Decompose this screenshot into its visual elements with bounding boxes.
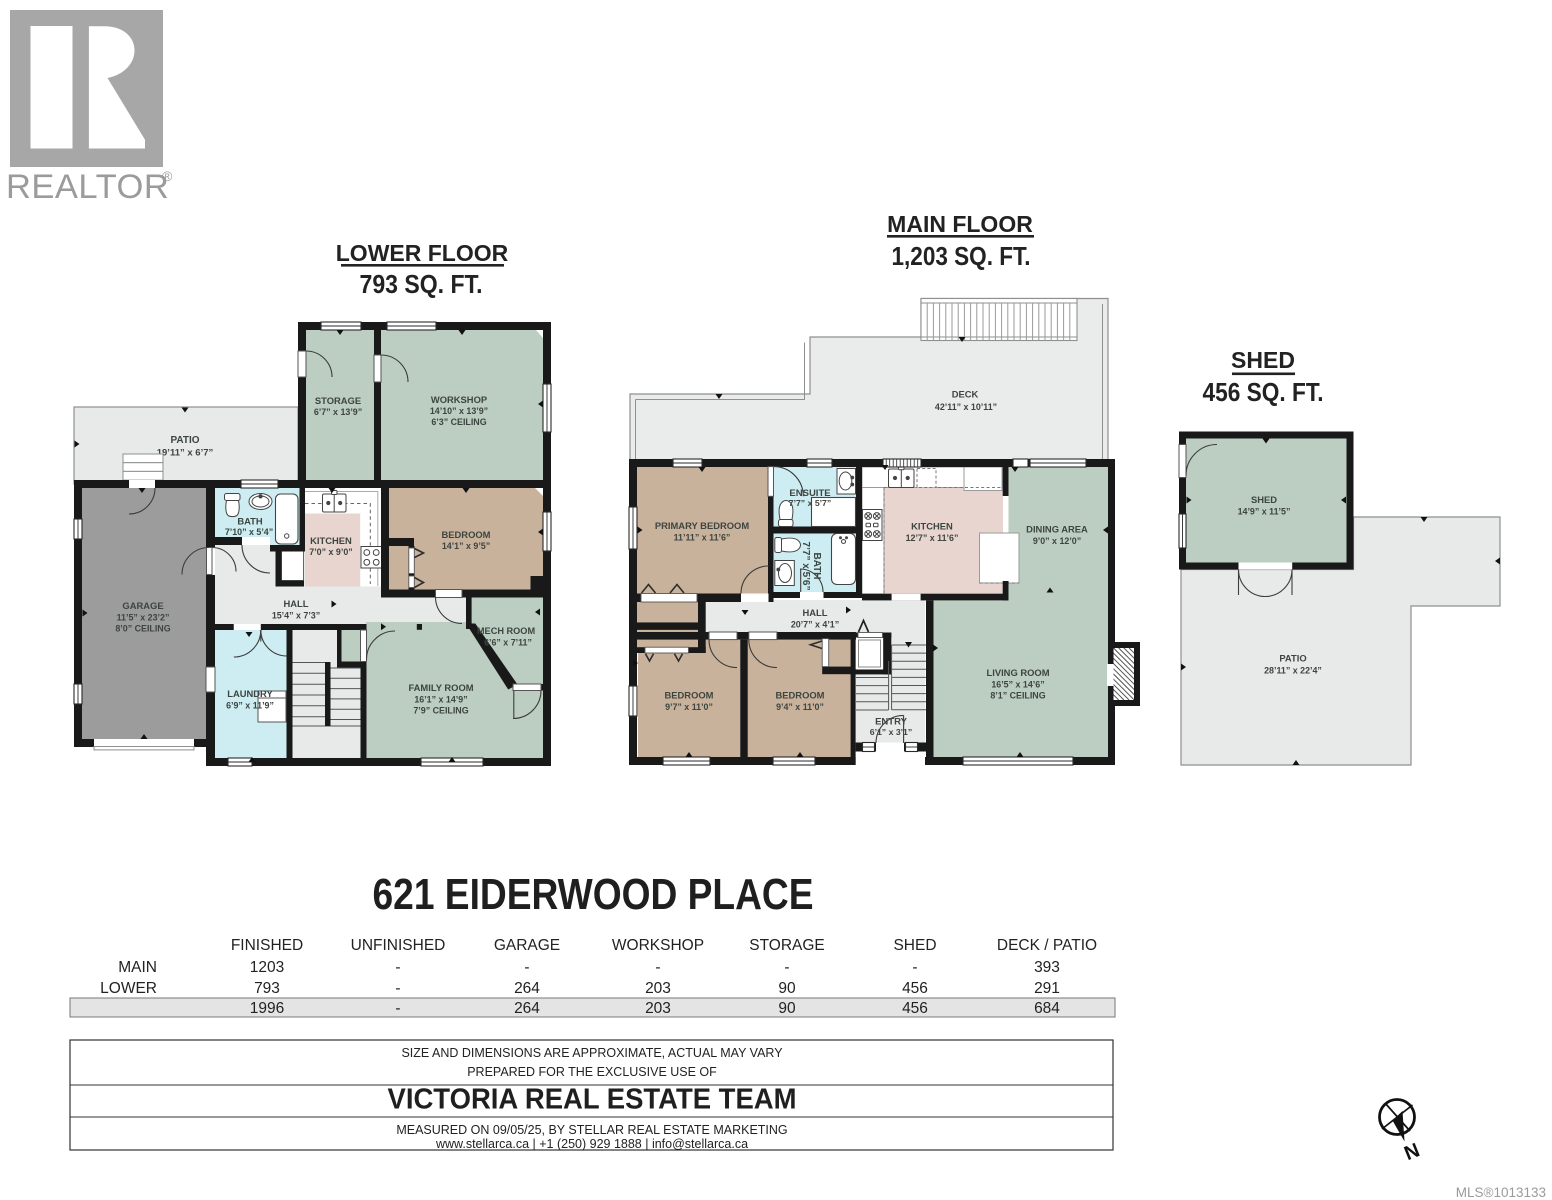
svg-text:6’6” x 7’11”: 6’6” x 7’11”	[484, 638, 532, 648]
svg-text:WORKSHOP: WORKSHOP	[612, 937, 704, 954]
svg-text:VICTORIA REAL ESTATE TEAM: VICTORIA REAL ESTATE TEAM	[388, 1084, 797, 1116]
svg-text:9’0” x 12’0”: 9’0” x 12’0”	[1033, 536, 1081, 546]
svg-text:7’7” x 5’7”: 7’7” x 5’7”	[789, 498, 832, 508]
svg-text:HALL: HALL	[284, 598, 309, 609]
svg-text:14’10” x 13’9”: 14’10” x 13’9”	[430, 406, 488, 416]
svg-text:PREPARED FOR THE EXCLUSIVE USE: PREPARED FOR THE EXCLUSIVE USE OF	[467, 1065, 717, 1079]
svg-text:393: 393	[1034, 959, 1060, 976]
svg-text:456: 456	[902, 1000, 928, 1017]
svg-text:MAIN: MAIN	[118, 959, 157, 976]
svg-text:19’11” x 6’7”: 19’11” x 6’7”	[157, 448, 214, 459]
svg-text:16’5” x 14’6”: 16’5” x 14’6”	[991, 680, 1044, 690]
svg-text:PATIO: PATIO	[1279, 653, 1306, 664]
svg-text:793: 793	[254, 980, 280, 997]
svg-text:264: 264	[514, 1000, 540, 1017]
svg-text:6’7” x 13’9”: 6’7” x 13’9”	[314, 407, 362, 417]
svg-text:9’7” x 11’0”: 9’7” x 11’0”	[665, 702, 713, 712]
svg-text:®: ®	[162, 168, 173, 184]
svg-text:SHED: SHED	[893, 937, 936, 954]
svg-text:456 SQ. FT.: 456 SQ. FT.	[1203, 379, 1324, 407]
svg-text:SIZE AND DIMENSIONS ARE APPROX: SIZE AND DIMENSIONS ARE APPROXIMATE, ACT…	[401, 1046, 783, 1060]
svg-text:HALL: HALL	[803, 607, 828, 618]
svg-text:6’3” CEILING: 6’3” CEILING	[431, 417, 486, 427]
svg-text:MECH ROOM: MECH ROOM	[477, 626, 536, 636]
svg-text:PRIMARY BEDROOM: PRIMARY BEDROOM	[655, 520, 749, 531]
svg-text:STORAGE: STORAGE	[315, 395, 361, 406]
svg-text:684: 684	[1034, 1000, 1060, 1017]
svg-text:www.stellarca.ca | +1 (250) 92: www.stellarca.ca | +1 (250) 929 1888 | i…	[435, 1137, 748, 1151]
svg-text:UNFINISHED: UNFINISHED	[351, 937, 446, 954]
svg-text:LOWER FLOOR: LOWER FLOOR	[336, 240, 509, 266]
svg-text:621 EIDERWOOD PLACE: 621 EIDERWOOD PLACE	[373, 870, 814, 919]
svg-text:8’1” CEILING: 8’1” CEILING	[990, 691, 1045, 701]
svg-text:264: 264	[514, 980, 540, 997]
svg-text:14’9” x 11’5”: 14’9” x 11’5”	[1238, 507, 1291, 517]
svg-text:16’1” x 14’9”: 16’1” x 14’9”	[414, 695, 467, 705]
svg-text:MLS®1013133: MLS®1013133	[1456, 1185, 1546, 1200]
svg-text:291: 291	[1034, 980, 1060, 997]
svg-text:-: -	[395, 959, 400, 976]
svg-text:SHED: SHED	[1251, 494, 1277, 505]
svg-text:PATIO: PATIO	[170, 435, 199, 446]
svg-text:203: 203	[645, 980, 671, 997]
svg-text:-: -	[524, 959, 529, 976]
svg-text:11’5” x 23’2”: 11’5” x 23’2”	[117, 613, 170, 623]
svg-text:DECK / PATIO: DECK / PATIO	[997, 937, 1097, 954]
svg-text:GARAGE: GARAGE	[122, 600, 163, 611]
svg-text:-: -	[784, 959, 789, 976]
svg-text:BEDROOM: BEDROOM	[442, 529, 491, 540]
svg-text:9’4” x 11’0”: 9’4” x 11’0”	[776, 702, 824, 712]
svg-text:8’0” CEILING: 8’0” CEILING	[115, 624, 170, 634]
svg-text:LOWER: LOWER	[100, 980, 157, 997]
svg-text:BEDROOM: BEDROOM	[665, 690, 714, 701]
svg-text:MAIN FLOOR: MAIN FLOOR	[887, 211, 1033, 237]
svg-text:ENTRY: ENTRY	[875, 717, 908, 728]
svg-text:FINISHED: FINISHED	[231, 937, 303, 954]
svg-text:90: 90	[778, 980, 796, 997]
svg-text:KITCHEN: KITCHEN	[310, 535, 352, 546]
svg-text:-: -	[395, 1000, 400, 1017]
svg-text:42’11” x 10’11”: 42’11” x 10’11”	[935, 402, 997, 412]
svg-text:456: 456	[902, 980, 928, 997]
svg-text:BEDROOM: BEDROOM	[776, 690, 825, 701]
svg-text:LIVING ROOM: LIVING ROOM	[986, 667, 1049, 678]
svg-text:STORAGE: STORAGE	[749, 937, 825, 954]
svg-text:WORKSHOP: WORKSHOP	[431, 394, 487, 405]
svg-text:7’9” CEILING: 7’9” CEILING	[413, 706, 468, 716]
svg-text:-: -	[395, 980, 400, 997]
svg-text:MEASURED ON 09/05/25, BY STELL: MEASURED ON 09/05/25, BY STELLAR REAL ES…	[396, 1123, 787, 1137]
svg-text:GARAGE: GARAGE	[494, 937, 560, 954]
svg-text:FAMILY ROOM: FAMILY ROOM	[408, 682, 473, 693]
svg-text:1203: 1203	[250, 959, 284, 976]
svg-text:12’7” x 11’6”: 12’7” x 11’6”	[906, 533, 959, 543]
svg-text:20’7” x 4’1”: 20’7” x 4’1”	[791, 620, 839, 630]
svg-text:BATH: BATH	[237, 516, 263, 527]
svg-text:DINING AREA: DINING AREA	[1026, 524, 1088, 535]
svg-text:REALTOR: REALTOR	[6, 168, 169, 206]
svg-text:203: 203	[645, 1000, 671, 1017]
svg-text:DECK: DECK	[952, 389, 979, 400]
svg-text:14’1” x 9’5”: 14’1” x 9’5”	[442, 541, 490, 551]
svg-text:-: -	[912, 959, 917, 976]
svg-text:7’0” x 9’0”: 7’0” x 9’0”	[309, 547, 352, 557]
svg-text:SHED: SHED	[1231, 347, 1295, 373]
svg-text:1,203 SQ. FT.: 1,203 SQ. FT.	[892, 243, 1031, 271]
svg-text:793 SQ. FT.: 793 SQ. FT.	[360, 271, 483, 299]
svg-text:11’11” x 11’6”: 11’11” x 11’6”	[674, 533, 731, 543]
svg-text:-: -	[655, 959, 660, 976]
svg-text:LAUNDRY: LAUNDRY	[227, 688, 273, 699]
svg-text:90: 90	[778, 1000, 796, 1017]
svg-text:6’1” x 3’1”: 6’1” x 3’1”	[870, 727, 913, 737]
svg-text:28’11” x 22’4”: 28’11” x 22’4”	[1264, 666, 1322, 676]
svg-text:KITCHEN: KITCHEN	[911, 521, 953, 532]
svg-text:7’10” x 5’4”: 7’10” x 5’4”	[225, 527, 273, 537]
svg-text:1996: 1996	[250, 1000, 284, 1017]
svg-text:6’9” x 11’9”: 6’9” x 11’9”	[226, 701, 274, 711]
svg-text:15’4” x 7’3”: 15’4” x 7’3”	[272, 611, 320, 621]
